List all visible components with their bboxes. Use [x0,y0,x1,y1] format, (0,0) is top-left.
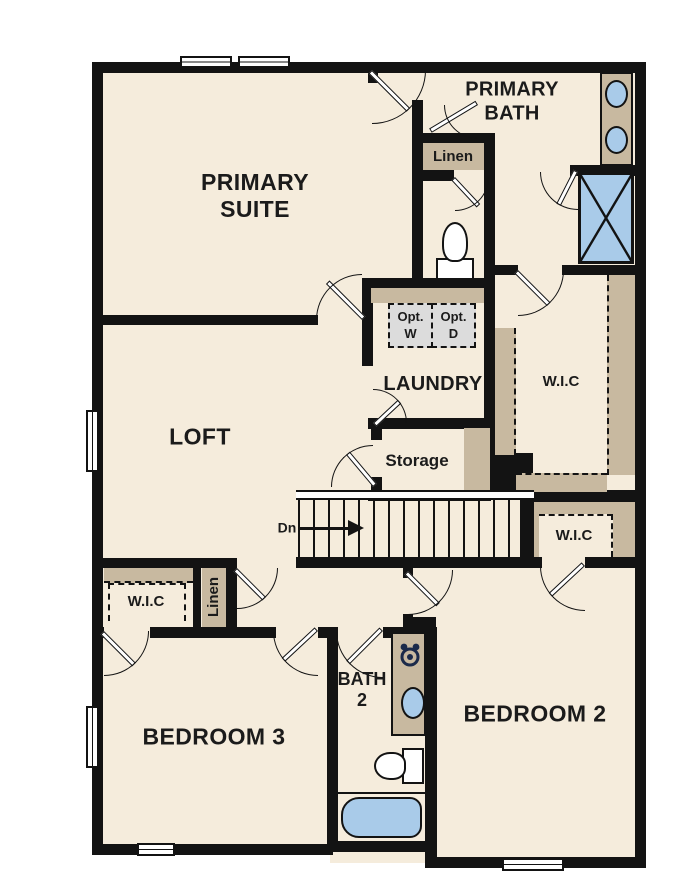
closet-label-linen-left: Linen [205,577,223,617]
room-label-loft: LOFT [169,423,231,450]
exterior-wall-right [635,62,646,868]
toilet-bowl [374,752,406,780]
wall-linen-top [412,133,495,143]
room-label-bedroom2: BEDROOM 2 [464,700,607,727]
stairs-arrow-line [300,527,350,530]
room-label-wic-small: W.I.C [556,527,593,545]
wic-large-shelf-left [495,328,516,455]
stairs-dn-label: Dn [278,520,297,537]
room-label-bedroom3: BEDROOM 3 [143,723,286,750]
stairs-arrow-head [348,520,364,536]
window [238,56,290,68]
wall-linen-left [412,100,423,290]
room-label-wic-large: W.I.C [543,373,580,391]
window [86,706,99,768]
wall-bedroom3-top-b [150,627,276,638]
bathtub [341,797,422,838]
washer-box: Opt.W [388,303,433,348]
window [86,410,99,472]
room-label-primary-suite: PRIMARYSUITE [201,169,309,223]
laundry-shelf [371,288,484,303]
room-label-wic-left: W.I.C [128,593,165,611]
sink [401,687,425,719]
room-label-primary-bath: PRIMARYBATH [465,78,559,125]
room-label-bath2: BATH2 [338,669,387,711]
room-label-storage: Storage [385,451,448,471]
window [502,858,564,871]
window [180,56,232,68]
wic-large-shelf-right [607,275,635,475]
wall-bath-wic-b [562,265,635,275]
dryer-label: Opt.D [441,309,467,342]
window [137,843,175,856]
wall-wicleft-top [92,558,235,568]
wall-wic-small-bottom-a [520,557,542,568]
wall-vestibule-connector [403,617,436,628]
wic-left-shelf [104,568,193,583]
exterior-wall-bottom-bedroom3 [92,844,333,855]
sink [605,126,628,154]
floor-plan: Opt.W Opt.D PRIMARYSUITE PRIMARYBATH [0,0,679,880]
room-label-laundry: LAUNDRY [383,373,482,397]
stairs-rail [296,490,534,500]
wall-bath-wic-a [484,265,518,275]
storage-side-strip [464,428,490,492]
wall-linen-bottom [412,170,454,181]
faucet-icon [398,640,422,670]
sink [605,80,628,108]
shower-x-icon [578,172,634,264]
wall-stairs-bottom [296,557,534,568]
dryer-box: Opt.D [431,303,476,348]
closet-label-linen-top: Linen [433,148,473,166]
washer-label: Opt.W [398,309,424,342]
toilet-bowl [442,222,468,262]
wall-wic-small-bottom-b [585,557,646,568]
wall-suite-loft [92,315,318,325]
wall-wicleft-divider [193,565,201,627]
